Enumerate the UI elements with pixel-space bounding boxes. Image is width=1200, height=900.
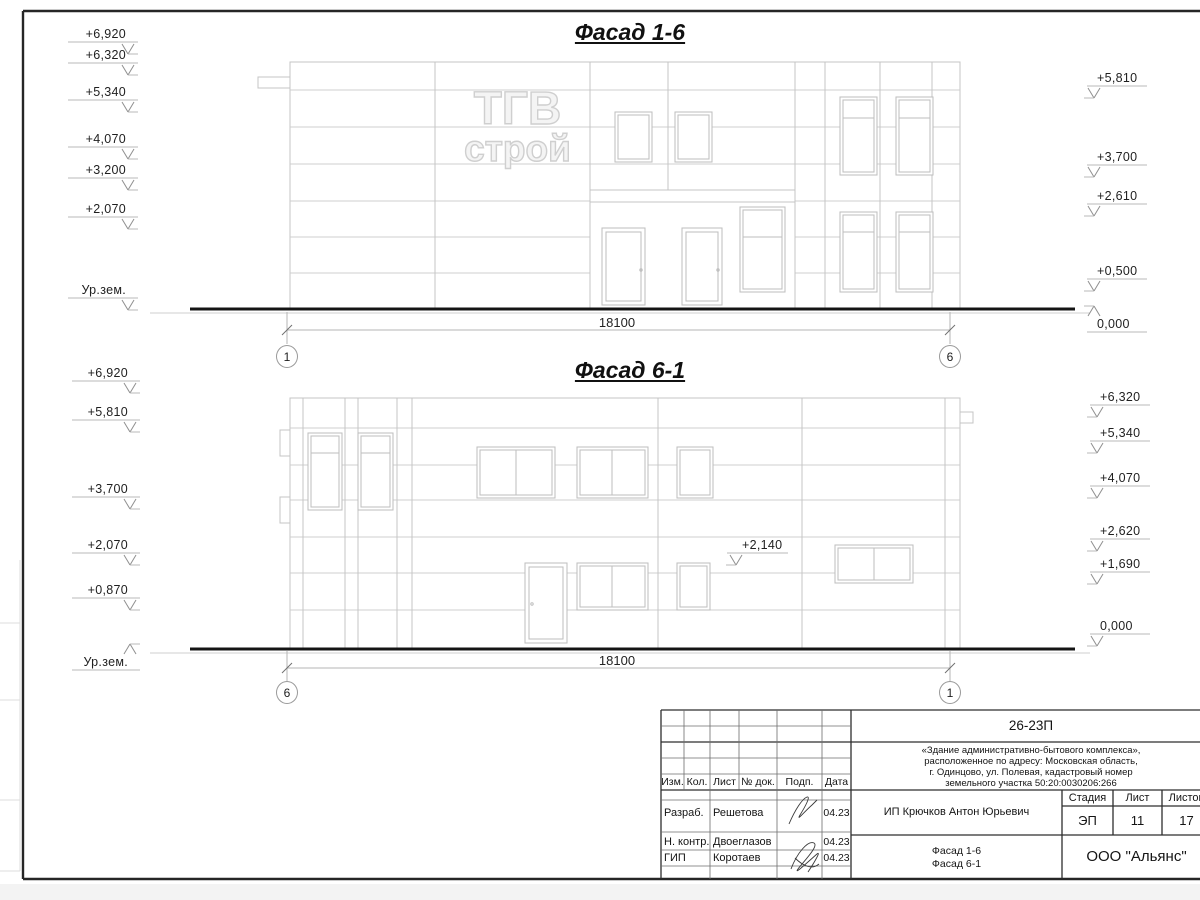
elevation-mark-line (1091, 443, 1097, 453)
elevation-mark-line (1088, 281, 1094, 291)
staff-name: Решетова (713, 807, 763, 819)
elevation-mark-line (1097, 443, 1103, 453)
facade1-drawing (258, 62, 960, 308)
elevation-mark-line (122, 149, 128, 159)
elevation-mark-line (124, 600, 130, 610)
subject-line1: Фасад 1-6 (851, 845, 1062, 857)
elevation-mark-line (128, 300, 134, 310)
description-line: г. Одинцово, ул. Полевая, кадастровый но… (851, 767, 1200, 778)
elevation-mark-line (1091, 488, 1097, 498)
elevation-mark-line (1091, 636, 1097, 646)
elevation-mark-line (128, 149, 134, 159)
drawing-sheet: { "sheet": { "facade1": { "title": "Фаса… (0, 0, 1200, 900)
elevation-mark-line (124, 499, 130, 509)
col-kol: Кол. (684, 776, 710, 788)
staff-role: Разраб. (664, 807, 704, 819)
col-list: Лист (710, 776, 739, 788)
left-margin-boxes (0, 560, 20, 871)
description-line: расположенное по адресу: Московская обла… (851, 756, 1200, 767)
elevation-mark-line (128, 180, 134, 190)
elevation-mark-line (1094, 206, 1100, 216)
col-ndok: № док. (739, 776, 777, 788)
elevation-mark-line (130, 644, 136, 654)
elevation-mark-line (122, 65, 128, 75)
elevation-mark-line (1088, 206, 1094, 216)
elevation-mark-line (124, 383, 130, 393)
elevation-mark-line (1091, 541, 1097, 551)
elevation-mark-line (1097, 488, 1103, 498)
sheets-value: 17 (1162, 813, 1200, 828)
facade1-dimension-value: 18100 (567, 315, 667, 330)
description-line: земельного участка 50:20:0030206:266 (851, 778, 1200, 789)
elevation-mark-line (130, 422, 136, 432)
elevation-mark-line (1097, 541, 1103, 551)
elevation-mark-line (122, 219, 128, 229)
elevation-mark-line (1094, 306, 1100, 316)
client-name: ИП Крючков Антон Юрьевич (851, 806, 1062, 818)
elevation-mark-line (736, 555, 742, 565)
elevation-mark-line (1097, 636, 1103, 646)
elevation-mark-line (1094, 167, 1100, 177)
elevation-mark-line (1091, 407, 1097, 417)
stage-label: Стадия (1062, 792, 1113, 804)
col-podp: Подп. (777, 776, 822, 788)
organization-name: ООО "Альянс" (1062, 848, 1200, 865)
col-data: Дата (822, 776, 851, 788)
staff-date: 04.23 (822, 836, 851, 848)
signature-marks (789, 797, 819, 872)
elevation-mark-line (122, 44, 128, 54)
signature-reshetova (789, 797, 817, 824)
elevation-mark-line (1088, 167, 1094, 177)
elevation-mark-line (1097, 574, 1103, 584)
subject-line2: Фасад 6-1 (851, 858, 1062, 870)
facade2-title: Фасад 6-1 (480, 357, 780, 384)
staff-role: Н. контр. (664, 836, 709, 848)
doc-number: 26-23П (851, 718, 1200, 733)
elevation-mark-line (1094, 88, 1100, 98)
staff-date: 04.23 (822, 807, 851, 819)
elevation-mark-line (122, 300, 128, 310)
stage-value: ЭП (1062, 813, 1113, 828)
elevation-mark-line (124, 555, 130, 565)
staff-name: Коротаев (713, 852, 761, 864)
staff-name: Двоеглазов (713, 836, 771, 848)
elevation-mark-line (1091, 574, 1097, 584)
staff-role: ГИП (664, 852, 686, 864)
elevation-mark-line (122, 102, 128, 112)
elevation-mark-line (122, 180, 128, 190)
elevation-mark-line (124, 644, 130, 654)
elevation-mark-line (130, 600, 136, 610)
elevation-mark-line (130, 555, 136, 565)
elevation-mark-line (730, 555, 736, 565)
sheet-value: 11 (1113, 813, 1162, 828)
staff-date: 04.23 (822, 852, 851, 864)
paper-edge (0, 884, 1200, 900)
facade1-axis-bubble-left: 1 (276, 345, 298, 368)
elevation-mark-line (124, 422, 130, 432)
elevation-mark-line (128, 219, 134, 229)
description-line: «Здание административно-бытового комплек… (851, 745, 1200, 756)
facade1-axis-bubble-right: 6 (939, 345, 961, 368)
elevation-mark-line (128, 102, 134, 112)
elevation-mark-line (1094, 281, 1100, 291)
elevation-mark-line (1088, 88, 1094, 98)
facade2-axis-bubble-right: 1 (939, 681, 961, 704)
facade2-dimension-value: 18100 (567, 653, 667, 668)
logo-line1: ТГВ (440, 86, 595, 130)
elevation-mark-line (128, 65, 134, 75)
elevation-mark-line (1088, 306, 1094, 316)
col-izm: Изм. (661, 776, 684, 788)
elevation-mark-line (130, 499, 136, 509)
signature-gip (791, 843, 818, 872)
facade1-title: Фасад 1-6 (480, 19, 780, 46)
elevation-mark-line (128, 44, 134, 54)
tgv-stroy-logo: ТГВ строй (440, 86, 595, 168)
facade2-axis-bubble-left: 6 (276, 681, 298, 704)
logo-line2: строй (440, 130, 595, 168)
sheet-label: Лист (1113, 792, 1162, 804)
elevation-mark-line (1097, 407, 1103, 417)
facade2-drawing (280, 398, 973, 648)
sheets-label: Листов (1162, 792, 1200, 804)
elevation-mark-line (130, 383, 136, 393)
